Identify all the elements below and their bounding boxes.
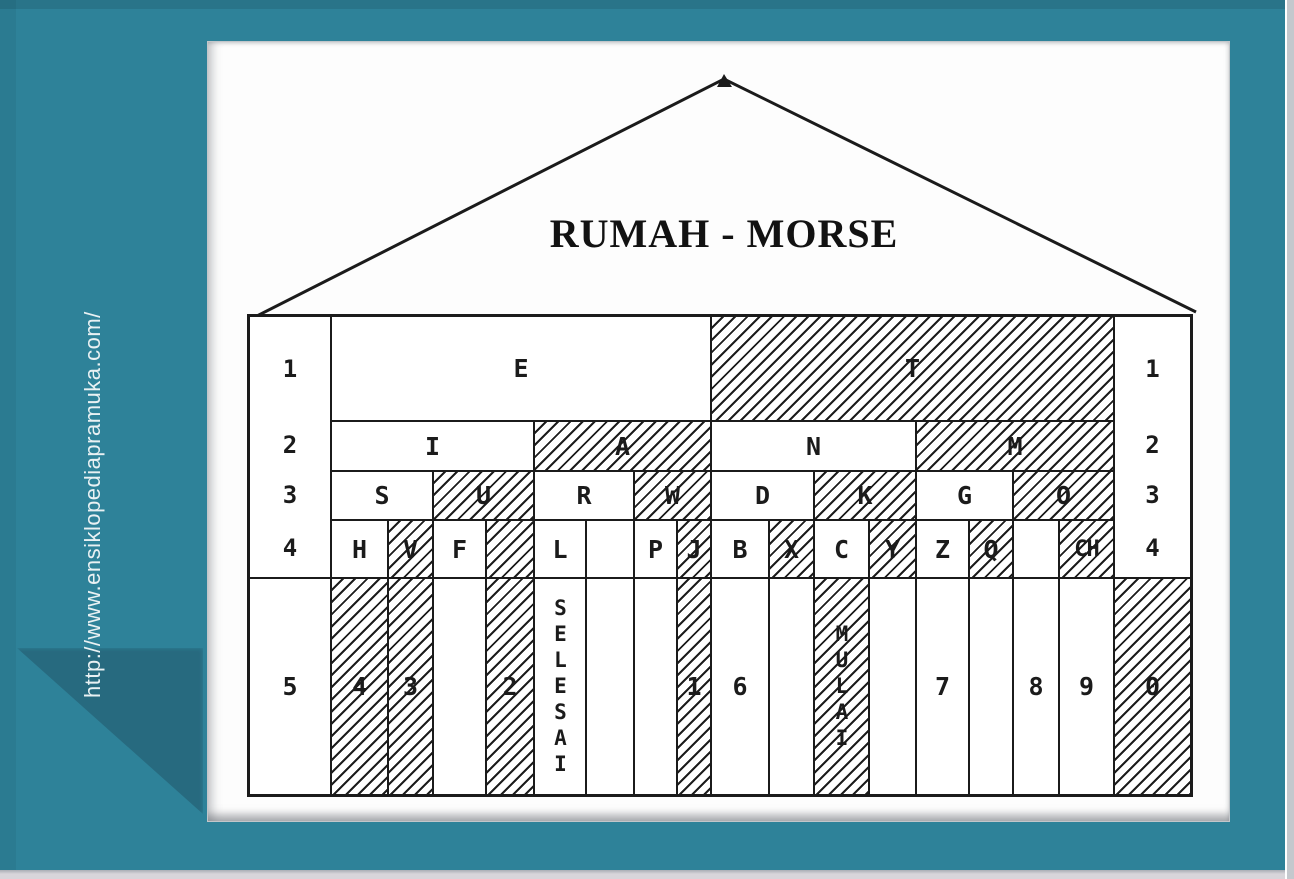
morse-cell-P: P (634, 520, 677, 578)
morse-cell-SELESAI: SELESAI (534, 578, 586, 795)
morse-cell-Y: Y (869, 520, 916, 578)
right-scale: 1234 (1114, 316, 1191, 578)
morse-cell-W: W (634, 471, 711, 520)
morse-cell-U: U (433, 471, 534, 520)
scale-number: 4 (1115, 519, 1190, 577)
morse-cell-L: L (534, 520, 586, 578)
morse-cell-H: H (331, 520, 388, 578)
slide-background: http://www.ensiklopediapramuka.com/ RUMA… (0, 0, 1294, 879)
morse-cell-X: X (769, 520, 814, 578)
diagram-card: RUMAH - MORSE 1234123450ETIANMSURWDKGOHV… (207, 41, 1230, 822)
scale-number: 1 (250, 317, 330, 420)
morse-cell-2: 2 (486, 578, 534, 795)
scale-number: 3 (250, 470, 330, 519)
morse-cell-8: 8 (1013, 578, 1059, 795)
morse-cell-V: V (388, 520, 433, 578)
morse-cell-3: 3 (388, 578, 433, 795)
morse-cell-O: O (1013, 471, 1114, 520)
morse-cell-J: J (677, 520, 711, 578)
morse-cell-9: 9 (1059, 578, 1114, 795)
morse-cell-F: F (433, 520, 486, 578)
morse-cell-I: I (331, 421, 534, 471)
morse-cell-C: C (814, 520, 869, 578)
morse-cell-B: B (711, 520, 769, 578)
watermark-url: http://www.ensiklopediapramuka.com/ (73, 300, 113, 710)
morse-cell-Q: Q (969, 520, 1013, 578)
morse-cell-M: M (916, 421, 1114, 471)
morse-cell-G: G (916, 471, 1013, 520)
slide-top-edge (0, 0, 1294, 9)
morse-cell-6: 6 (711, 578, 769, 795)
morse-cell-0: 0 (1114, 578, 1191, 795)
scale-number: 1 (1115, 317, 1190, 420)
morse-cell-empty-r5c13 (869, 578, 916, 795)
morse-cell-CH: CH (1059, 520, 1114, 578)
morse-cell-N: N (711, 421, 916, 471)
morse-cell-empty-r5c8 (634, 578, 677, 795)
scale-number: 2 (250, 420, 330, 470)
morse-cell-empty-r5c15 (969, 578, 1013, 795)
window-bottom-edge (0, 870, 1294, 879)
morse-cell-S: S (331, 471, 433, 520)
morse-cell-A: A (534, 421, 711, 471)
morse-cell-E: E (331, 316, 711, 421)
left-scale: 1234 (249, 316, 331, 578)
morse-cell-7: 7 (916, 578, 969, 795)
window-right-edge (1285, 0, 1294, 879)
morse-cell-empty-r4c5 (486, 520, 534, 578)
morse-cell-K: K (814, 471, 916, 520)
morse-cell-1: 1 (677, 578, 711, 795)
morse-cell-empty-r4c16 (1013, 520, 1059, 578)
morse-cell-D: D (711, 471, 814, 520)
slide-left-edge (0, 0, 16, 879)
morse-cell-Z: Z (916, 520, 969, 578)
morse-cell-T: T (711, 316, 1114, 421)
morse-cell-R: R (534, 471, 634, 520)
morse-cell-5: 5 (249, 578, 331, 795)
scale-number: 4 (250, 519, 330, 577)
morse-cell-empty-r5c7 (586, 578, 634, 795)
diagram-title: RUMAH - MORSE (464, 210, 984, 257)
morse-cell-empty-r4c7 (586, 520, 634, 578)
morse-cell-empty-r5c11 (769, 578, 814, 795)
scale-number: 3 (1115, 470, 1190, 519)
scale-number: 2 (1115, 420, 1190, 470)
morse-cell-empty-r5c4 (433, 578, 486, 795)
morse-house-table: 1234123450ETIANMSURWDKGOHVFLPJBXCYZQCH43… (247, 314, 1193, 797)
morse-cell-MULAI: MULAI (814, 578, 869, 795)
morse-cell-4: 4 (331, 578, 388, 795)
